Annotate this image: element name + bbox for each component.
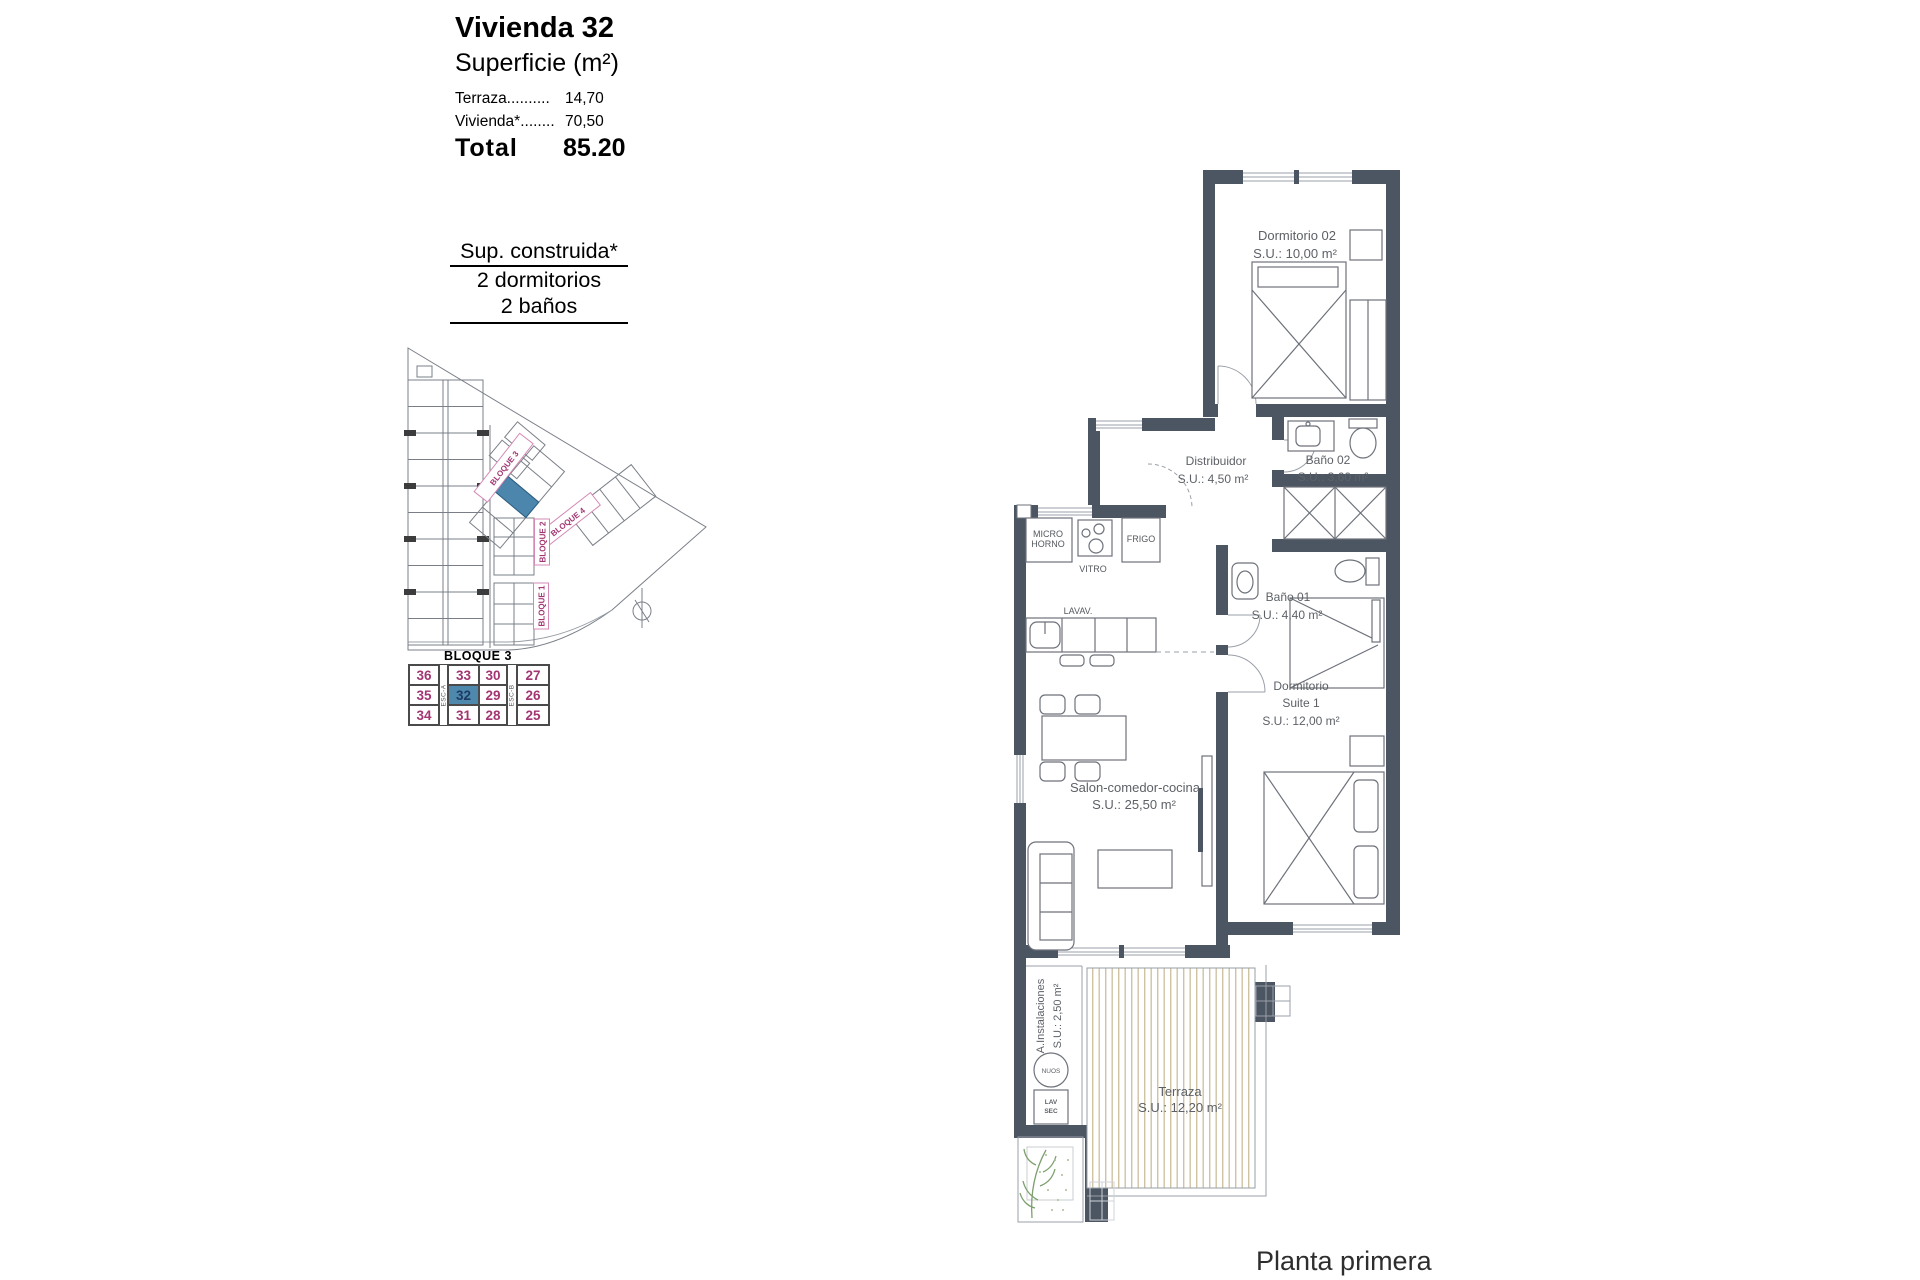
bano-02-name: Baño 02	[1306, 453, 1351, 467]
unit-cell: 36	[409, 665, 439, 685]
vivienda-measure-value: 70,50	[565, 113, 604, 131]
banos-line: 2 baños	[450, 293, 628, 324]
unit-cell-highlighted-32: 32	[448, 685, 479, 705]
north-arrow-icon	[633, 588, 651, 628]
horno-label: HORNO	[1031, 539, 1065, 549]
esc-b-text: ESC-B	[509, 684, 516, 706]
unit-cell: 34	[409, 705, 439, 725]
living-room-furniture	[1028, 695, 1212, 950]
tv-unit-icon	[1198, 756, 1212, 886]
unit-cell: 33	[448, 665, 479, 685]
unit-cell: 31	[448, 705, 479, 725]
sec-label: SEC	[1044, 1108, 1058, 1115]
unit-grid-title: BLOQUE 3	[408, 649, 548, 663]
instalaciones-name: A.Instalaciones	[1035, 978, 1047, 1053]
unit-cell: 25	[517, 705, 549, 725]
suite-area: S.U.: 12,00 m²	[1262, 714, 1339, 728]
bloque-1-label: BLOQUE 1	[534, 583, 549, 629]
bathroom-01-fixtures	[1232, 558, 1384, 688]
total-label: Total	[455, 134, 518, 163]
sofa-icon	[1028, 842, 1074, 950]
unit-title: Vivienda 32	[455, 12, 614, 45]
terrace-decking	[1087, 968, 1255, 1188]
unit-cell: 30	[479, 665, 507, 685]
floor-caption: Planta primera	[1256, 1246, 1432, 1277]
esc-a-text: ESC-A	[440, 684, 447, 706]
unit-grid-table: ESC-A ESC-B 36 33 30 27 35 32 29 26 34 3…	[408, 664, 550, 726]
bano-01-name: Baño 01	[1266, 590, 1311, 604]
bloque-2-label: BLOQUE 2	[535, 519, 550, 565]
dormitorio-02-area: S.U.: 10,00 m²	[1253, 246, 1337, 261]
esc-b-label: ESC-B	[507, 665, 517, 725]
closet-icon	[1284, 487, 1386, 539]
suite-name-line1: Dormitorio	[1273, 679, 1329, 693]
townhouse-block	[404, 366, 490, 648]
salon-area: S.U.: 25,50 m²	[1092, 797, 1176, 812]
nuos-label: NUOS	[1042, 1068, 1061, 1075]
terraza-measure-label: Terraza..........	[455, 90, 550, 108]
plan-drawing: BLOQUE 3 BLOQUE 4 BLOQUE 2 BLOQUE 1	[0, 0, 1920, 1280]
frigo-label: FRIGO	[1127, 534, 1156, 544]
bloque-1-label-text: BLOQUE 1	[538, 585, 547, 626]
unit-cell: 35	[409, 685, 439, 705]
lavav-label: LAVAV.	[1064, 606, 1093, 616]
vitro-label: VITRO	[1079, 564, 1107, 574]
surface-heading: Superficie (m²)	[455, 49, 619, 78]
suite-furniture	[1264, 736, 1384, 904]
bloque-2-building	[494, 518, 534, 575]
salon-name: Salon-comedor-cocina	[1070, 780, 1201, 795]
distribuidor-area: S.U.: 4,50 m²	[1178, 472, 1249, 486]
esc-a-label: ESC-A	[439, 665, 448, 725]
dormitorios-line: 2 dormitorios	[450, 267, 628, 293]
unit-cell: 29	[479, 685, 507, 705]
dining-table-icon	[1040, 695, 1126, 781]
site-plan-map: BLOQUE 3 BLOQUE 4 BLOQUE 2 BLOQUE 1	[404, 348, 706, 650]
sup-construida-line: Sup. construida*	[450, 238, 628, 267]
toilet-icon	[1335, 558, 1379, 585]
total-value: 85.20	[563, 134, 626, 163]
bano-01-area: S.U.: 4,40 m²	[1252, 608, 1323, 622]
unit-cell: 27	[517, 665, 549, 685]
suite-name-line2: Suite 1	[1282, 696, 1320, 710]
stool-icon	[1090, 655, 1114, 666]
stool-icon	[1060, 655, 1084, 666]
terraza-measure-value: 14,70	[565, 90, 604, 108]
lav-label: LAV	[1045, 1099, 1058, 1106]
terraza-name: Terraza	[1158, 1084, 1202, 1099]
toilet-icon	[1349, 419, 1377, 458]
distribuidor-name: Distribuidor	[1186, 454, 1247, 468]
unit-cell: 28	[479, 705, 507, 725]
nightstand-icon	[1350, 736, 1384, 766]
nightstand-icon	[1350, 230, 1382, 260]
built-surface-note: Sup. construida* 2 dormitorios 2 baños	[450, 238, 628, 324]
unit-cell: 26	[517, 685, 549, 705]
coffee-table-icon	[1098, 850, 1172, 888]
instalaciones-area: S.U.: 2,50 m²	[1052, 983, 1064, 1048]
micro-label: MICRO	[1033, 529, 1063, 539]
dormitorio-02-name: Dormitorio 02	[1258, 228, 1336, 243]
washer-dryer-icon	[1034, 1090, 1068, 1124]
bloque-2-label-text: BLOQUE 2	[539, 521, 548, 562]
floor-plan-sheet: BLOQUE 3 BLOQUE 4 BLOQUE 2 BLOQUE 1	[0, 0, 1920, 1280]
counter-sink-icon	[1026, 618, 1156, 652]
bano-02-area: S.U.: 3,60 m²	[1298, 470, 1369, 484]
plant-icon	[1020, 1149, 1056, 1218]
bloque-1-building	[494, 583, 534, 645]
terraza-area: S.U.: 12,20 m²	[1138, 1100, 1222, 1115]
cooktop-icon	[1078, 520, 1112, 556]
vivienda-measure-label: Vivienda*........	[455, 113, 555, 131]
